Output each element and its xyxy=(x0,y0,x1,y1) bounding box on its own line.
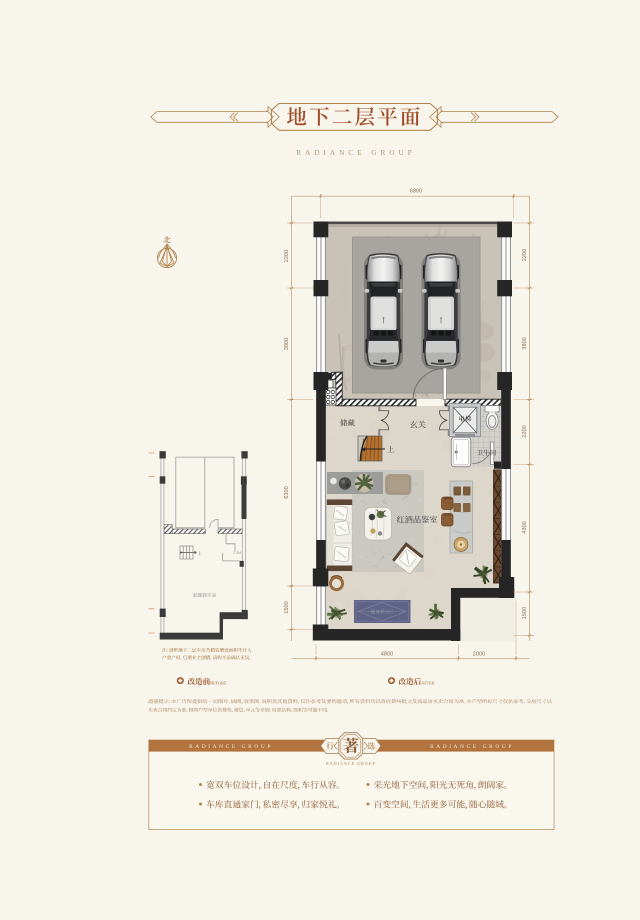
svg-text:RADIANCE GROUP: RADIANCE GROUP xyxy=(430,744,514,750)
svg-text:RADIANCE GROUP: RADIANCE GROUP xyxy=(189,744,273,750)
svg-text:2200: 2200 xyxy=(522,249,528,261)
svg-text:RADIANCE GROUP: RADIANCE GROUP xyxy=(326,762,376,766)
svg-text:2200: 2200 xyxy=(284,250,290,262)
svg-text:1500: 1500 xyxy=(284,601,290,613)
svg-text:/BEFORE: /BEFORE xyxy=(209,680,227,685)
svg-text:4800: 4800 xyxy=(381,652,393,658)
svg-text:1500: 1500 xyxy=(522,607,528,619)
svg-text:6800: 6800 xyxy=(410,189,422,195)
svg-text:2200: 2200 xyxy=(522,425,528,437)
svg-text:2.5M: 2.5M xyxy=(233,551,241,555)
svg-text:4300: 4300 xyxy=(522,521,528,533)
svg-text:3800: 3800 xyxy=(522,337,528,349)
svg-text:RADIANCE GROUP: RADIANCE GROUP xyxy=(296,149,415,157)
svg-text:/AFTER: /AFTER xyxy=(420,680,435,685)
svg-text:6300: 6300 xyxy=(284,486,290,498)
svg-text:2000: 2000 xyxy=(473,652,485,658)
svg-text:3800: 3800 xyxy=(284,338,290,350)
